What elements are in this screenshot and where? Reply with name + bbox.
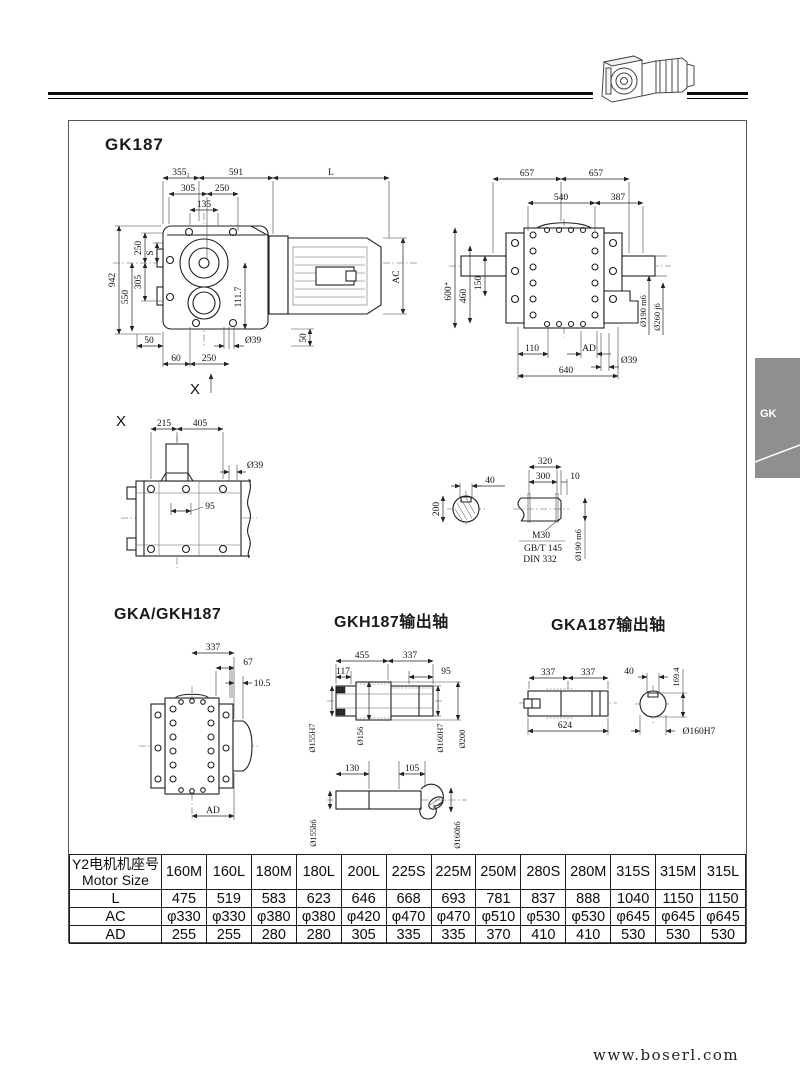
dim-label: 10 [570, 472, 580, 482]
dim-label: 305 [181, 184, 196, 194]
dim-label: 169.4 [671, 667, 681, 687]
dim-label: Ø160h6 [452, 821, 462, 848]
table-col-header: 315M [656, 855, 701, 890]
table-cell: φ470 [431, 908, 476, 926]
table-cell: 530 [656, 926, 701, 944]
table-cell: 280 [296, 926, 341, 944]
x-detail-drawing: X 215 405 [116, 413, 263, 568]
table-cell: φ645 [701, 908, 746, 926]
dim-label: 111.7 [234, 286, 244, 307]
dim-label: Ø160H7 [435, 723, 445, 752]
dim-label: 300 [536, 472, 551, 482]
dim-label: 95 [205, 502, 215, 512]
dim-label: 550 [121, 290, 131, 305]
dim-label: S [146, 250, 156, 255]
dim-label: 624 [558, 721, 573, 731]
dim-label: 50 [299, 333, 309, 343]
table-col-header: 180M [251, 855, 296, 890]
dim-label: Ø155H7 [307, 723, 317, 752]
dim-label: 95 [441, 667, 451, 677]
table-cell: 530 [701, 926, 746, 944]
table-cell: φ380 [296, 908, 341, 926]
dim-label: Ø160H7 [683, 727, 716, 737]
dim-label: 337 [403, 651, 418, 661]
dim-label: Ø156 [355, 727, 365, 746]
top-rule-left [48, 92, 593, 99]
dim-label: 455 [355, 651, 370, 661]
dim-label: 337 [541, 668, 556, 678]
row-label: AC [70, 908, 162, 926]
dim-label: Ø260 j6 [652, 303, 662, 331]
table-cell: 668 [386, 890, 431, 908]
dim-label: Ø155h6 [308, 819, 318, 846]
table-cell: φ530 [566, 908, 611, 926]
table-cell: φ645 [656, 908, 701, 926]
gka-gkh-drawing: 337 67 10.5 AD [139, 643, 271, 821]
table-row-AC: AC φ330 φ330 φ380 φ380 φ420 φ470 φ470 φ5… [70, 908, 746, 926]
dim-label: 337 [581, 668, 596, 678]
dim-label: AC [392, 270, 402, 283]
dim-label: 355₁ [172, 168, 190, 178]
table-cell: 781 [476, 890, 521, 908]
gearmotor-illustration [590, 48, 698, 108]
dim-label: 200 [432, 502, 442, 517]
table-cell: 519 [206, 890, 251, 908]
dim-label: 250 [202, 354, 217, 364]
table-cell: φ330 [206, 908, 251, 926]
gkh-shaft-drawing: 455 337 117 95 Ø155H7 Ø156 Ø160H7 Ø200 [307, 651, 467, 849]
x-view-label: X [116, 413, 126, 430]
table-col-header: 200L [341, 855, 386, 890]
table-cell: 255 [162, 926, 207, 944]
table-col-header: 250M [476, 855, 521, 890]
table-col-header: 315S [611, 855, 656, 890]
table-col-header: 225M [431, 855, 476, 890]
table-cell: 305 [341, 926, 386, 944]
table-cell: φ510 [476, 908, 521, 926]
dim-label: 215 [157, 419, 172, 429]
website-url: www.boserl.com [593, 1046, 739, 1064]
table-cell: 255 [206, 926, 251, 944]
detail-x-marker: X [190, 381, 200, 398]
dim-label: Ø190 m6 [573, 529, 583, 561]
content-frame: GK187 GKA/GKH187 GKH187输出轴 GKA187输出轴 [68, 120, 747, 943]
dim-label: 117 [336, 667, 350, 677]
dim-label: Ø39 [245, 336, 262, 346]
table-cell: 530 [611, 926, 656, 944]
row-label: AD [70, 926, 162, 944]
table-row-AD: AD 255 255 280 280 305 335 335 370 410 4… [70, 926, 746, 944]
table-cell: 623 [296, 890, 341, 908]
dim-label: 337 [206, 643, 221, 653]
dim-label: 67 [243, 658, 253, 668]
table-cell: φ380 [251, 908, 296, 926]
table-cell: 280 [251, 926, 296, 944]
table-col-header: 315L [701, 855, 746, 890]
table-cell: 410 [566, 926, 611, 944]
table-cell: 837 [521, 890, 566, 908]
shaft-section-drawing: 40 200 320 300 10 M30 [432, 457, 585, 565]
table-col-header: 180L [296, 855, 341, 890]
table-cell: 1150 [656, 890, 701, 908]
header-en: Motor Size [70, 872, 161, 888]
row-label: L [70, 890, 162, 908]
dim-label: 320 [538, 457, 553, 467]
dim-label: 150 [474, 276, 484, 291]
dim-label: 460 [459, 289, 469, 304]
standard-ref: GB/T 145 [524, 544, 562, 554]
dim-label: 40 [624, 667, 634, 677]
table-header-row: Y2电机机座号 Motor Size 160M 160L 180M 180L 2… [70, 855, 746, 890]
catalog-page: GK GK187 GKA/GKH187 GKH187输出轴 GKA187输出轴 [0, 0, 800, 1092]
table-cell: φ470 [386, 908, 431, 926]
dim-label: 250 [215, 184, 230, 194]
table-cell: φ420 [341, 908, 386, 926]
table-cell: 646 [341, 890, 386, 908]
side-index-tab[interactable]: GK [755, 358, 800, 478]
front-view-drawing: 355₁ 591 L 305 250 135 [108, 168, 417, 398]
dim-label: Ø190 m6 [638, 295, 648, 327]
dim-label: Ø200 [457, 730, 467, 749]
dim-label: 40 [485, 476, 495, 486]
thread-spec: M30 [532, 531, 550, 541]
table-cell: 693 [431, 890, 476, 908]
table-col-header: 280M [566, 855, 611, 890]
dim-label: 405 [193, 419, 208, 429]
table-cell: 583 [251, 890, 296, 908]
dim-label: 387 [611, 193, 626, 203]
table-cell: 475 [162, 890, 207, 908]
dim-label: 10.5 [254, 679, 271, 689]
dim-label: 130 [345, 764, 360, 774]
standard-ref: DIN 332 [523, 555, 557, 565]
table-cell: 1150 [701, 890, 746, 908]
table-col-header: 280S [521, 855, 566, 890]
dim-label: 600⁺ [444, 281, 454, 300]
dim-label: Ø39 [621, 356, 638, 366]
dim-label: 305 [134, 275, 144, 290]
table-cell: 370 [476, 926, 521, 944]
dim-label: 657 [520, 169, 535, 179]
dim-label: AD [206, 806, 220, 816]
dim-label: 60 [171, 354, 181, 364]
dim-label: L [328, 168, 334, 178]
dim-label: Ø39 [247, 461, 264, 471]
table-cell: 410 [521, 926, 566, 944]
table-header-motor-size: Y2电机机座号 Motor Size [70, 855, 162, 890]
table-cell: 1040 [611, 890, 656, 908]
table-col-header: 160L [206, 855, 251, 890]
technical-drawings: 355₁ 591 L 305 250 135 [69, 121, 746, 942]
table-cell: φ530 [521, 908, 566, 926]
table-col-header: 225S [386, 855, 431, 890]
dim-label: 50 [144, 336, 154, 346]
tab-diagonal-line [755, 358, 800, 478]
gka-shaft-drawing: 337 337 624 40 169.4 [519, 667, 716, 737]
table-cell: 335 [431, 926, 476, 944]
dim-label: 135 [197, 200, 212, 210]
header-cn: Y2电机机座号 [70, 856, 161, 872]
table-cell: 335 [386, 926, 431, 944]
dim-label: 591 [229, 168, 244, 178]
table-cell: φ645 [611, 908, 656, 926]
table-cell: 888 [566, 890, 611, 908]
table-cell: φ330 [162, 908, 207, 926]
dim-label: 640 [559, 366, 574, 376]
table-col-header: 160M [162, 855, 207, 890]
dim-label: 250 [134, 241, 144, 256]
dim-label: 657 [589, 169, 604, 179]
dim-label: 540 [554, 193, 569, 203]
table-row-L: L 475 519 583 623 646 668 693 781 837 88… [70, 890, 746, 908]
dim-label: 942 [108, 273, 118, 288]
motor-size-table: Y2电机机座号 Motor Size 160M 160L 180M 180L 2… [69, 854, 746, 944]
side-view-drawing: 657 657 540 387 600⁺ 460 150 Ø190 m6 [444, 169, 671, 379]
dim-label: 110 [525, 344, 539, 354]
dim-label: 105 [405, 764, 420, 774]
dim-label: AD [582, 344, 596, 354]
